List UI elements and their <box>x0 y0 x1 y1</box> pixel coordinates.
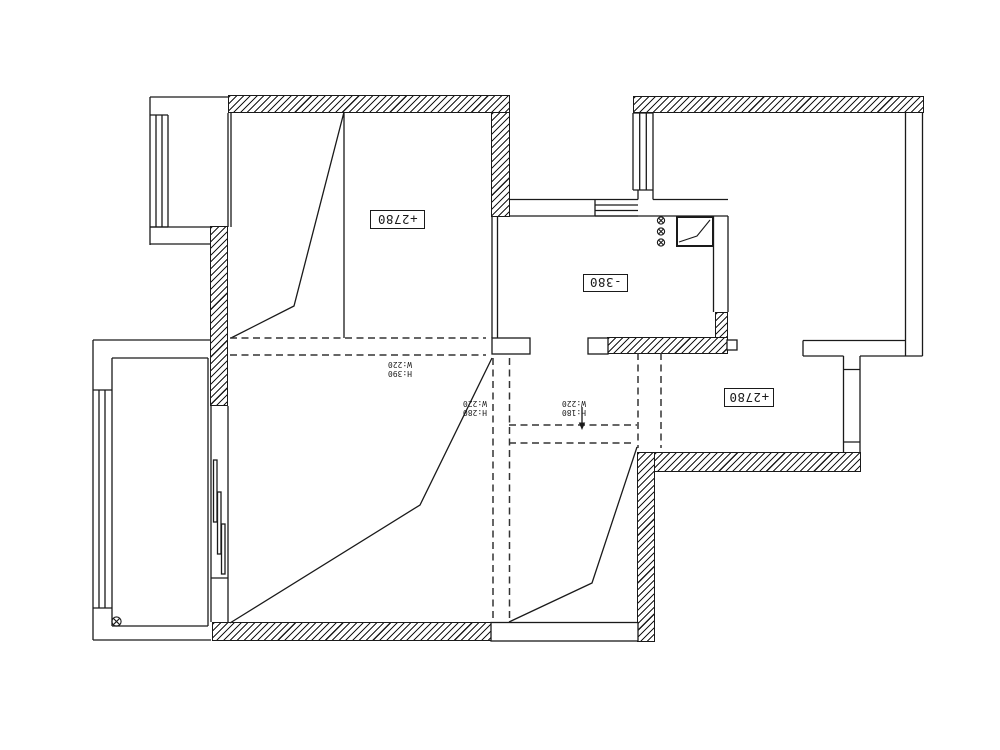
floor-plan: +2780 -380 +2780 H:390 W:220 H:280 W:220… <box>0 0 1000 750</box>
room-level-label-upper-left: +2780 <box>370 210 425 229</box>
door-jamb-left <box>588 338 608 354</box>
floorplan-linework <box>0 0 1000 750</box>
dimension-label-passage: H:180 W:220 <box>556 399 592 417</box>
wall-stub <box>492 338 530 354</box>
dim-width: W:220 <box>556 399 592 408</box>
kitchen-walls <box>492 190 728 338</box>
dim-height: H:180 <box>556 408 592 417</box>
balcony-bottom-walls <box>93 340 211 640</box>
door-jamb-right <box>727 340 737 350</box>
appliance-symbol <box>677 217 713 246</box>
dimension-label-slope: H:280 W:220 <box>457 399 493 417</box>
dim-width: W:220 <box>382 360 418 369</box>
window-symbol-bottom-balcony <box>93 390 112 608</box>
door-opening-right <box>844 356 861 452</box>
sliding-door-symbol <box>214 460 226 574</box>
dimension-label-ridge: H:390 W:220 <box>382 360 418 378</box>
lamp-symbol-balcony <box>112 617 121 626</box>
steps-symbol <box>595 200 638 217</box>
room-level-label-right: +2780 <box>724 388 774 407</box>
ceiling-slope-line-living <box>230 358 492 623</box>
ceiling-slope-line-dining <box>509 447 637 622</box>
dim-width: W:220 <box>457 399 493 408</box>
threshold-opening <box>491 623 638 642</box>
lamp-symbols-kitchen <box>657 217 664 246</box>
dim-height: H:390 <box>382 369 418 378</box>
dim-height: H:280 <box>457 408 493 417</box>
ceiling-slope-line-bedroom <box>231 112 344 338</box>
room-level-label-middle: -380 <box>583 274 628 292</box>
window-symbol-top-balcony <box>150 115 168 227</box>
window-symbol-top-right <box>633 113 653 190</box>
right-room-walls <box>803 113 923 356</box>
ceiling-dashed-lines <box>230 338 661 622</box>
